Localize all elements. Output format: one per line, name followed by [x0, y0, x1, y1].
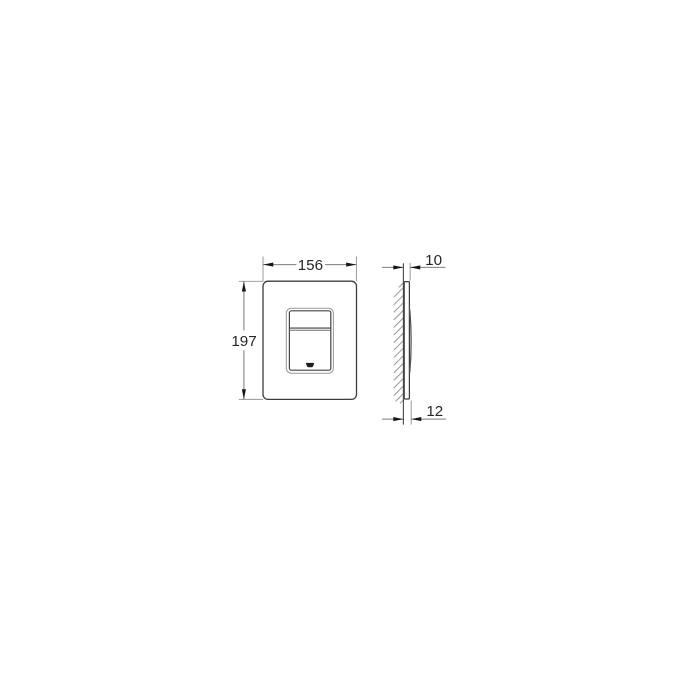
- svg-text:10: 10: [425, 252, 442, 269]
- svg-text:12: 12: [426, 403, 443, 420]
- svg-text:156: 156: [298, 257, 323, 274]
- svg-text:197: 197: [231, 333, 256, 350]
